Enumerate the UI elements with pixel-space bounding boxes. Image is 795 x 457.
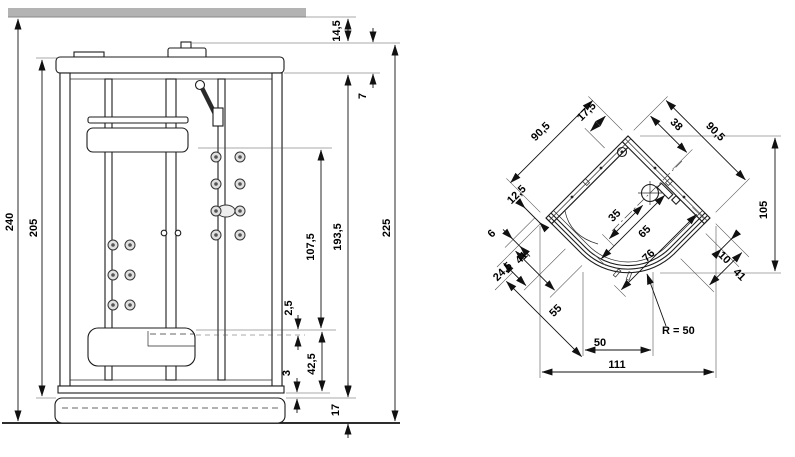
dim-14-5-label: 14,5 xyxy=(331,20,343,41)
dim-35-label: 35 xyxy=(606,207,623,224)
roof-strip xyxy=(74,52,104,57)
shower-tray xyxy=(55,398,285,423)
dim-6-label: 6 xyxy=(485,227,498,240)
front-elevation-view: 240 205 14,5 7 225 193,5 xyxy=(2,8,400,438)
dim-right-wall: 90,5 xyxy=(666,101,745,180)
dim-111: 111 xyxy=(542,359,714,372)
shelf-box xyxy=(87,128,188,152)
plan-view: 90,5 17,5 38 90,5 105 12,5 xyxy=(485,96,781,378)
plan-walls xyxy=(546,136,710,224)
dim-105: 105 xyxy=(758,138,775,271)
dim-7-label: 7 xyxy=(357,93,369,99)
dim-90-5-right-label: 90,5 xyxy=(703,120,727,144)
ceiling-bar xyxy=(8,8,306,17)
shower-cabin-front xyxy=(55,42,285,423)
dim-107-5: 107,5 xyxy=(305,150,321,328)
dim-38: 38 xyxy=(651,116,687,152)
dim-50-label: 50 xyxy=(594,337,606,349)
dim-2-5: 2,5 xyxy=(283,300,298,350)
dim-240: 240 xyxy=(4,19,18,421)
dim-225: 225 xyxy=(381,45,395,421)
right-post xyxy=(272,73,282,386)
dim-2-5-label: 2,5 xyxy=(283,300,295,315)
dim-12-5-label: 12,5 xyxy=(505,183,529,207)
seat xyxy=(88,328,195,366)
dim-12-5: 12,5 xyxy=(505,183,546,229)
dim-41-left: 41 xyxy=(513,249,554,290)
dim-radius: R = 50 xyxy=(647,274,695,337)
dim-107-5-label: 107,5 xyxy=(305,233,317,261)
corner-seat-edge xyxy=(565,211,598,244)
dim-105-label: 105 xyxy=(758,201,770,219)
dim-14-5: 14,5 xyxy=(331,19,348,42)
shower-cabin-drawing: 240 205 14,5 7 225 193,5 xyxy=(0,0,795,457)
dim-7: 7 xyxy=(357,28,373,99)
dim-17: 17 xyxy=(330,383,348,438)
dim-radius-label: R = 50 xyxy=(662,325,695,337)
dim-240-label: 240 xyxy=(4,213,16,231)
curved-glass-front xyxy=(546,211,710,281)
shower-bracket xyxy=(213,108,223,126)
dim-38-label: 38 xyxy=(668,116,685,133)
dim-205-label: 205 xyxy=(28,219,40,237)
dim-10: 10 xyxy=(714,232,738,266)
dim-55: 55 xyxy=(506,281,581,356)
dim-65: 65 xyxy=(601,195,664,258)
shelf-bar xyxy=(88,117,188,123)
dim-42-5: 42,5 xyxy=(306,332,322,391)
dim-90-5-left-label: 90,5 xyxy=(529,120,553,144)
roof-cap xyxy=(56,57,284,73)
dim-55-label: 55 xyxy=(547,302,564,319)
dim-17-5-label: 17,5 xyxy=(575,100,599,124)
dim-41-right-label: 41 xyxy=(731,266,748,283)
door-handle-left xyxy=(613,269,620,277)
dim-42-5-label: 42,5 xyxy=(306,353,318,374)
dim-193-5: 193,5 xyxy=(332,75,348,396)
dim-205: 205 xyxy=(28,60,42,396)
left-post xyxy=(60,73,70,386)
dim-193-5-label: 193,5 xyxy=(332,223,344,251)
dim-225-label: 225 xyxy=(381,219,393,237)
dim-65-label: 65 xyxy=(636,223,653,240)
dim-24-5-label: 24,5 xyxy=(491,260,515,284)
dim-76: 76 xyxy=(621,214,696,289)
dim-17-5: 17,5 xyxy=(575,100,605,131)
dim-50: 50 xyxy=(585,337,651,350)
technical-drawing-page: 240 205 14,5 7 225 193,5 xyxy=(0,0,795,457)
dim-76-label: 76 xyxy=(640,247,657,264)
dim-3-label: 3 xyxy=(281,370,293,376)
base-frame xyxy=(58,386,284,393)
dim-17-label: 17 xyxy=(330,404,342,416)
door-knob-left xyxy=(161,230,167,236)
dim-111-label: 111 xyxy=(608,359,625,371)
door-knob-right xyxy=(175,230,181,236)
